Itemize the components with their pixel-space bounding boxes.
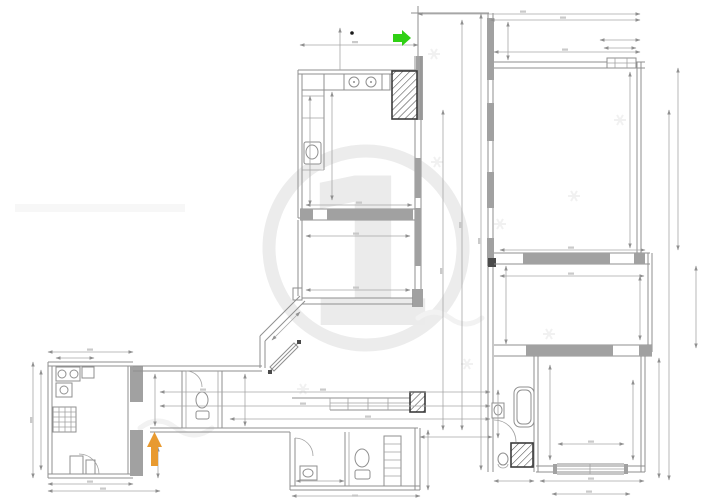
window-top-right	[607, 58, 636, 68]
corridor-wardrobe	[292, 398, 412, 410]
shaft-hatch	[392, 71, 417, 119]
toilet-icon	[498, 453, 508, 465]
door-swing-arc	[494, 420, 516, 442]
toilet-icon	[355, 449, 369, 467]
door-swing-arc	[186, 371, 202, 387]
left-room-fixtures	[53, 367, 99, 474]
door-swing-arc	[295, 438, 313, 456]
floor-plan-canvas: 1	[0, 0, 705, 498]
orange-arrow-marker[interactable]	[147, 432, 162, 466]
green-arrow-marker[interactable]	[393, 30, 411, 46]
reference-dot	[350, 31, 354, 35]
washing-machine-icon	[53, 407, 76, 432]
floor-plan-page: 1	[0, 0, 705, 498]
right-wing-walls	[487, 13, 652, 474]
watermark-faded-band	[15, 204, 185, 212]
shaft-hatch	[410, 392, 425, 412]
shelf-icon	[384, 436, 401, 486]
shaft-hatch	[511, 443, 533, 467]
corridor-walls	[133, 366, 425, 432]
